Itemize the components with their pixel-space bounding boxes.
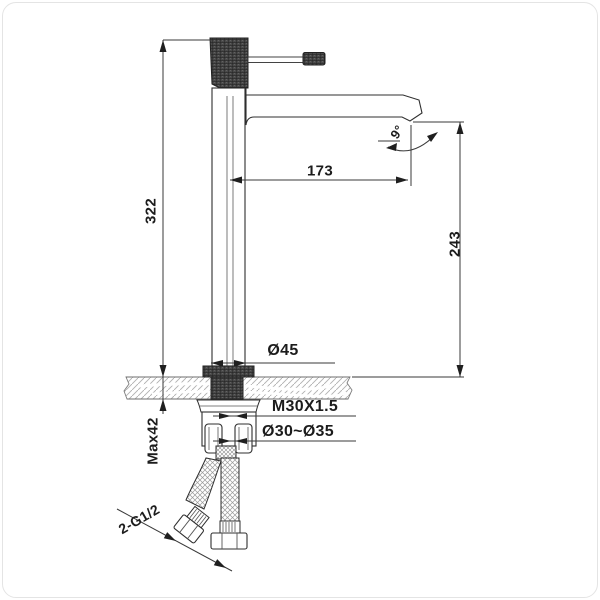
technical-drawing-page: 322 Max42 173 243 9° Ø45 M30X1.5 Ø30~Ø35… [0, 0, 600, 600]
max-deck-thickness-label: Max42 [145, 417, 162, 464]
hole-range-label: Ø30~Ø35 [262, 423, 334, 441]
body-diameter-label: Ø45 [267, 342, 298, 360]
faucet-spout [246, 95, 422, 125]
faucet-body-column [212, 88, 245, 366]
spout-reach-label: 173 [307, 163, 333, 180]
thread-spec-label: M30X1.5 [272, 398, 338, 416]
outlet-height-label: 243 [447, 231, 464, 257]
overall-height-label: 322 [143, 198, 160, 224]
faucet-line-art [0, 0, 600, 600]
mounting-hardware [197, 400, 260, 459]
faucet-handle [210, 38, 325, 96]
supply-hoses [173, 458, 247, 549]
